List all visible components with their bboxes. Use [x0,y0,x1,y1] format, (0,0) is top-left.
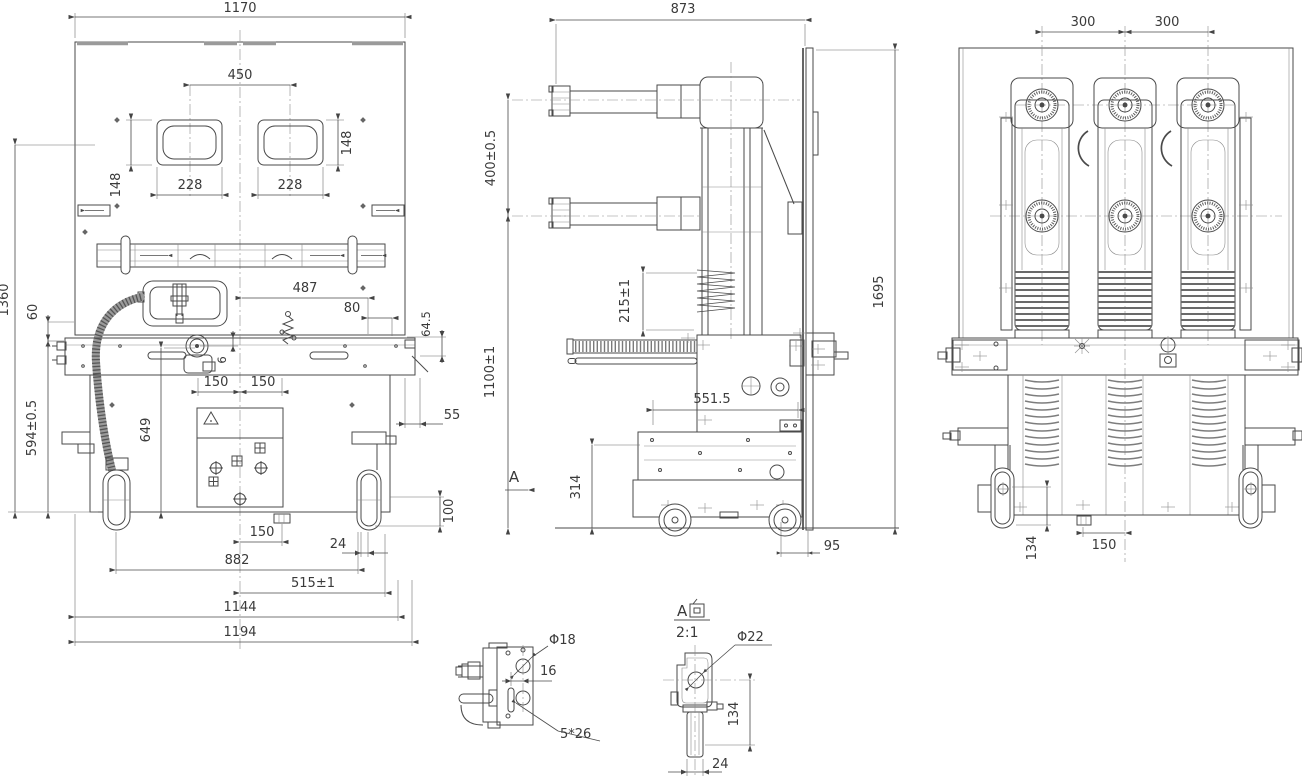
dim-detail-16: 16 [502,664,557,686]
window-right [258,120,323,165]
dim-label: 487 [293,281,318,296]
contact-spring [697,270,735,312]
dim-side-400: 400±0.5 [484,100,800,216]
dim-label: 80 [344,301,361,316]
upper-arm [549,85,700,118]
indicator-strip [97,236,385,274]
racking-screw [184,335,215,373]
detail-view-a: A 2:1 Φ22 134 24 [663,599,772,776]
front-view: 1170 450 148 148 228 228 [0,1,460,650]
dim-label: 882 [225,553,250,568]
dim-side-873: 873 [556,2,805,84]
interlock-spring [280,312,296,345]
dim-label: 6 [215,356,229,363]
dim-label: 150 [1092,538,1117,553]
dim-label: 215±1 [618,279,633,323]
dim-label: 1360 [0,283,12,316]
dim-side-314: 314 [569,445,640,528]
view-a-title: A 2:1 [674,599,710,641]
dim-label: 314 [569,475,584,500]
dim-label: 594±0.5 [25,400,40,456]
front-wheel-right [357,470,381,530]
dim-label: 148 [340,131,355,156]
dim-label: 1100±1 [483,346,498,398]
dim-label: 228 [278,178,303,193]
dim-side-215: 215±1 [618,273,697,330]
rear-truck-band [938,336,1302,375]
dim-front-515: 515±1 [240,534,385,597]
dim-label: 24 [712,757,729,772]
dim-label: 400±0.5 [484,130,499,186]
dim-label: 228 [178,178,203,193]
dim-front-594: 594±0.5 [25,341,48,512]
rear-view: 300 300 [938,15,1302,562]
dim-front-64-5: 64.5 [407,311,446,363]
dim-label: Φ22 [737,630,764,645]
louver-column-right [1192,380,1226,466]
detail-a-body [663,645,756,775]
dim-label: 551.5 [693,392,730,407]
dim-label: 1170 [223,1,256,16]
dim-label: 150 [250,525,275,540]
dim-rear-300-right: 300 [1125,15,1208,32]
side-view: 873 [483,2,899,557]
detail-left-body [456,643,533,728]
name-plate-right [372,205,404,216]
dim-front-228-left: 228 [157,167,222,199]
dim-label: 134 [727,702,742,727]
dim-label: 134 [1025,536,1040,561]
panel-symbol-round-2 [254,461,268,475]
dim-label: 1194 [223,625,256,640]
dim-detail-phi22: Φ22 [689,630,772,687]
dim-front-228-right: 228 [258,167,323,199]
side-wheel-rear [769,504,801,536]
rear-outrigger-right [1239,428,1302,528]
dim-label: 1695 [872,275,887,308]
dim-side-551-5: 551.5 [653,392,798,425]
dim-label: 450 [228,68,253,83]
panel-symbol-square-1 [255,443,265,453]
dim-front-60: 60 [26,304,74,348]
dim-front-150-bottom: 150 [240,524,282,546]
interlock-panel [138,281,227,326]
dim-front-148-right: 148 [326,120,355,165]
panel-symbol-square-2 [232,456,242,466]
mechanism-cluster [741,328,848,431]
dim-label: 24 [330,537,347,552]
scale-label: 2:1 [676,625,699,641]
view-a-letter: A [509,468,520,486]
dim-label: 60 [26,304,41,321]
front-wheel-left [103,458,130,530]
xiang-character [690,599,704,617]
dim-front-148-left: 148 [109,120,152,197]
dim-label: 649 [139,418,154,443]
dim-front-6: 6 [200,331,238,364]
engineering-drawing: 1170 450 148 148 228 228 [0,0,1302,780]
pole-side [700,62,802,340]
drawing-page: 1170 450 148 148 228 228 [0,0,1302,780]
control-cable [96,297,141,470]
dim-side-1100: 1100±1 [483,215,508,528]
panel-symbol-square-3 [209,477,218,486]
lead-screw [567,339,697,364]
dim-label: 300 [1155,15,1180,30]
lower-arm [549,197,700,230]
side-wheel-front [659,504,691,536]
dim-label: 100 [442,499,457,524]
dim-label: 95 [824,539,841,554]
window-left [157,120,222,165]
dim-rear-150: 150 [1083,527,1125,553]
dim-rear-300-left: 300 [1042,15,1125,32]
dim-label: 1144 [223,600,256,615]
dim-detail-5x26: 5*26 [516,703,600,742]
dim-label: Φ18 [549,633,576,648]
dim-label: 16 [540,664,557,679]
detail-interlock-shaft: Φ18 16 5*26 [456,633,600,742]
dim-front-24: 24 [330,532,388,557]
earth-bolt [1159,336,1177,367]
dim-label: 150 [251,375,276,390]
dim-rear-134: 134 [1012,487,1051,560]
panel-symbol-round-1 [209,461,223,475]
view-a-marker: A [505,468,528,490]
panel-symbol-round-3 [233,492,247,506]
dim-detail-24: 24 [668,757,729,776]
dim-label: 64.5 [419,311,433,337]
dim-front-882: 882 [116,532,358,574]
rear-plate [803,48,818,530]
louver-column-left [1025,380,1059,466]
rear-outrigger-left [943,428,1014,528]
rear-lower-box [1008,375,1245,525]
dim-side-1695: 1695 [816,50,899,528]
side-chassis [633,333,802,518]
dim-label: 150 [204,375,229,390]
view-a-letter: A [677,602,688,620]
dim-label: 515±1 [291,576,335,591]
dim-front-1360: 1360 [0,145,98,512]
dim-front-55: 55 [396,378,460,428]
name-plate-left [78,205,110,216]
dim-label: 148 [109,173,124,198]
star-bolt [1074,338,1090,354]
dim-label: 300 [1071,15,1096,30]
dim-label: 873 [671,2,696,17]
dim-label: 55 [444,408,461,423]
dim-label: 5*26 [560,727,591,742]
